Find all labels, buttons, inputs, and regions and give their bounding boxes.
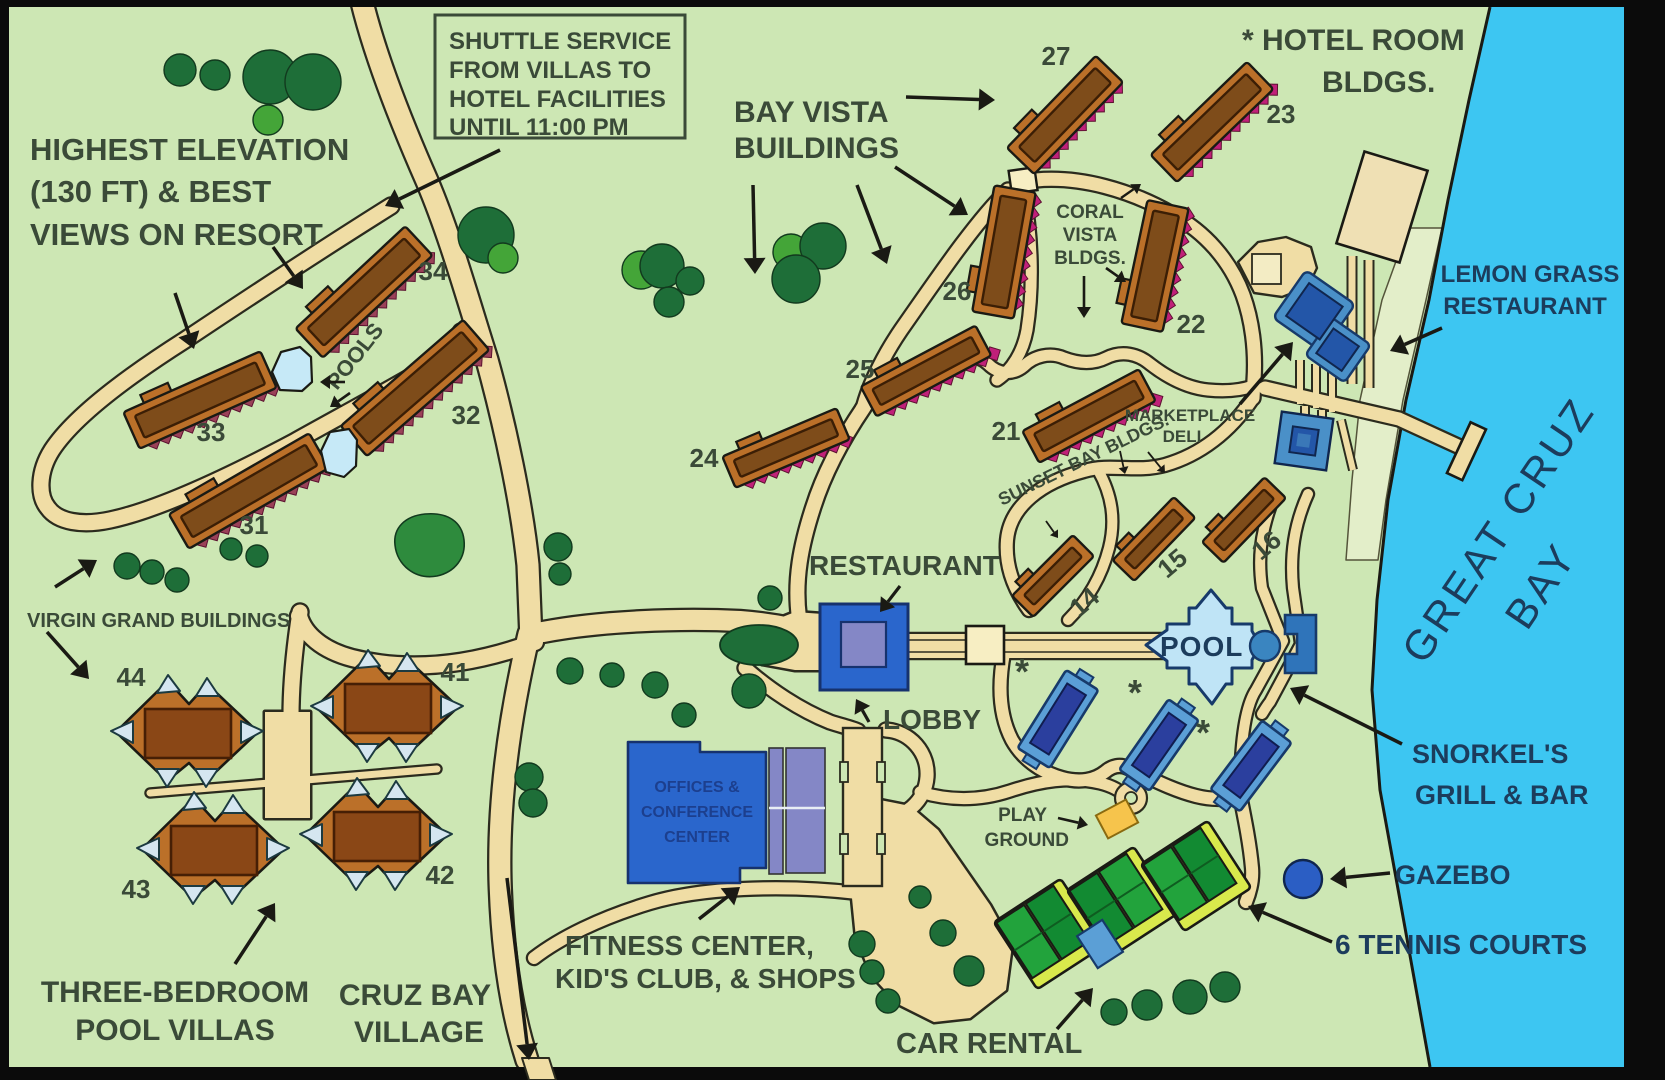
svg-text:(130 FT) & BEST: (130 FT) & BEST bbox=[30, 174, 271, 209]
svg-text:BLDGS.: BLDGS. bbox=[1322, 66, 1435, 99]
svg-text:32: 32 bbox=[452, 400, 481, 430]
svg-text:42: 42 bbox=[426, 860, 455, 890]
svg-text:23: 23 bbox=[1267, 99, 1296, 129]
svg-text:44: 44 bbox=[117, 662, 146, 692]
svg-text:6 TENNIS COURTS: 6 TENNIS COURTS bbox=[1335, 929, 1587, 960]
svg-text:RESTAURANT: RESTAURANT bbox=[1443, 293, 1607, 320]
svg-text:VILLAGE: VILLAGE bbox=[354, 1016, 484, 1049]
svg-text:VISTA: VISTA bbox=[1063, 225, 1118, 246]
svg-text:HIGHEST ELEVATION: HIGHEST ELEVATION bbox=[30, 132, 349, 167]
svg-text:BUILDINGS: BUILDINGS bbox=[734, 132, 899, 165]
svg-text:THREE-BEDROOM: THREE-BEDROOM bbox=[41, 976, 309, 1009]
svg-text:GRILL & BAR: GRILL & BAR bbox=[1415, 780, 1589, 810]
svg-text:43: 43 bbox=[122, 874, 151, 904]
svg-text:RESTAURANT: RESTAURANT bbox=[809, 550, 1000, 581]
svg-text:BLDGS.: BLDGS. bbox=[1054, 248, 1126, 269]
svg-text:HOTEL FACILITIES: HOTEL FACILITIES bbox=[449, 86, 666, 113]
svg-text:27: 27 bbox=[1042, 41, 1071, 71]
svg-text:GROUND: GROUND bbox=[985, 830, 1069, 851]
svg-text:41: 41 bbox=[441, 657, 470, 687]
svg-text:* HOTEL ROOM: * HOTEL ROOM bbox=[1242, 24, 1465, 57]
svg-text:LEMON GRASS: LEMON GRASS bbox=[1441, 261, 1620, 288]
svg-text:CORAL: CORAL bbox=[1056, 202, 1124, 223]
svg-text:FITNESS CENTER,: FITNESS CENTER, bbox=[565, 930, 814, 961]
svg-text:KID'S CLUB, & SHOPS: KID'S CLUB, & SHOPS bbox=[555, 963, 856, 994]
svg-text:PLAY: PLAY bbox=[998, 805, 1047, 826]
svg-text:GAZEBO: GAZEBO bbox=[1395, 860, 1511, 890]
svg-text:22: 22 bbox=[1177, 309, 1206, 339]
svg-text:*: * bbox=[1196, 712, 1210, 753]
svg-text:POOL: POOL bbox=[1160, 631, 1243, 662]
svg-text:CENTER: CENTER bbox=[664, 829, 730, 846]
svg-text:DELI: DELI bbox=[1163, 427, 1202, 446]
svg-text:33: 33 bbox=[197, 417, 226, 447]
svg-text:VIEWS ON RESORT: VIEWS ON RESORT bbox=[30, 217, 323, 252]
svg-text:31: 31 bbox=[240, 510, 269, 540]
svg-text:POOL VILLAS: POOL VILLAS bbox=[75, 1014, 274, 1047]
svg-text:OFFICES &: OFFICES & bbox=[654, 779, 740, 796]
svg-text:LOBBY: LOBBY bbox=[883, 704, 981, 735]
svg-text:VIRGIN GRAND BUILDINGS: VIRGIN GRAND BUILDINGS bbox=[27, 610, 290, 632]
svg-text:SNORKEL'S: SNORKEL'S bbox=[1412, 739, 1568, 769]
svg-text:CAR RENTAL: CAR RENTAL bbox=[896, 1028, 1082, 1060]
svg-text:26: 26 bbox=[943, 276, 972, 306]
svg-text:*: * bbox=[1015, 651, 1029, 692]
svg-text:CRUZ BAY: CRUZ BAY bbox=[339, 979, 491, 1012]
svg-text:*: * bbox=[1128, 672, 1142, 713]
svg-text:SHUTTLE SERVICE: SHUTTLE SERVICE bbox=[449, 28, 671, 55]
svg-text:UNTIL 11:00 PM: UNTIL 11:00 PM bbox=[449, 114, 629, 141]
svg-text:34: 34 bbox=[419, 256, 448, 286]
svg-text:21: 21 bbox=[992, 416, 1021, 446]
svg-text:25: 25 bbox=[846, 354, 875, 384]
svg-text:FROM VILLAS TO: FROM VILLAS TO bbox=[449, 57, 651, 84]
svg-text:24: 24 bbox=[690, 443, 719, 473]
svg-text:CONFERENCE: CONFERENCE bbox=[641, 804, 753, 821]
svg-text:BAY VISTA: BAY VISTA bbox=[734, 96, 889, 129]
